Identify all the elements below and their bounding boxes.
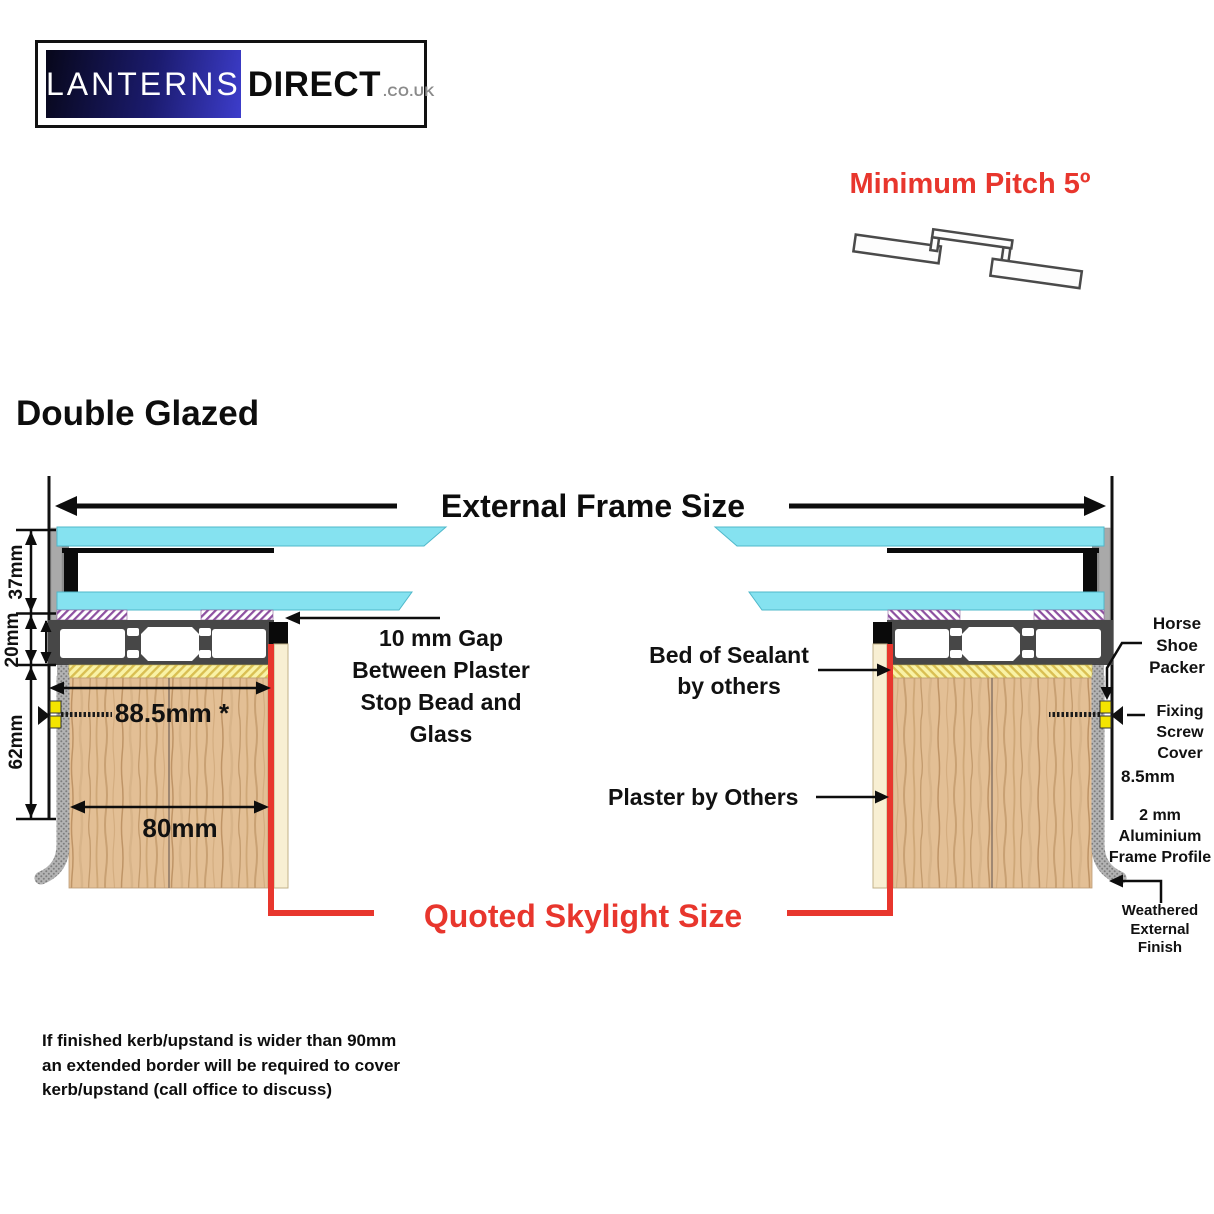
annotation-line: Fixing: [1146, 701, 1214, 722]
annotation-line: External: [1110, 921, 1210, 940]
annotation-line: Stop Bead and: [330, 686, 552, 718]
dim-8-5mm-label: 8.5mm: [1121, 766, 1175, 787]
annotation-line: Bed of Sealant: [629, 640, 829, 671]
footnote-line: an extended border will be required to c…: [42, 1054, 400, 1079]
annotation-line: Screw: [1146, 722, 1214, 743]
annotation-line: Cover: [1146, 743, 1214, 764]
dim-20mm-label: 20mm: [2, 605, 24, 675]
annotation-line: 2 mm: [1104, 805, 1214, 826]
footnote-line: kerb/upstand (call office to discuss): [42, 1078, 400, 1103]
annotation-line: Weathered: [1110, 902, 1210, 921]
annotation-line: Shoe: [1140, 635, 1214, 657]
quoted-skylight-size-label: Quoted Skylight Size: [368, 896, 798, 936]
page-title: Double Glazed: [16, 392, 259, 436]
external-frame-size-label: External Frame Size: [397, 486, 789, 526]
dim-37mm-label: 37mm: [6, 537, 28, 607]
gap-annotation: 10 mm Gap Between Plaster Stop Bead and …: [330, 622, 552, 750]
annotation-line: Between Plaster: [330, 654, 552, 686]
annotation-line: 10 mm Gap: [330, 622, 552, 654]
annotation-line: by others: [629, 671, 829, 702]
annotation-line: Finish: [1110, 939, 1210, 958]
annotation-line: Frame Profile: [1104, 847, 1214, 868]
footnote-line: If finished kerb/upstand is wider than 9…: [42, 1029, 400, 1054]
annotation-line: Horse: [1140, 613, 1214, 635]
annotation-line: Glass: [330, 718, 552, 750]
footnote: If finished kerb/upstand is wider than 9…: [42, 1029, 400, 1103]
dim-88-5mm-label: 88.5mm *: [72, 697, 272, 730]
frame-profile-annotation: 2 mm Aluminium Frame Profile: [1104, 805, 1214, 868]
skylight-spec-sheet: LANTERNS DIRECT .CO.UK: [0, 0, 1214, 1214]
dim-80mm-label: 80mm: [80, 812, 280, 845]
arrowhead-right: [1084, 496, 1106, 516]
pitch-sketch: [853, 219, 1085, 289]
bed-of-sealant-annotation: Bed of Sealant by others: [629, 640, 829, 702]
horse-shoe-packer-annotation: Horse Shoe Packer: [1140, 613, 1214, 679]
plaster-annotation: Plaster by Others: [608, 783, 798, 812]
fixing-screw-cover-annotation: Fixing Screw Cover: [1146, 701, 1214, 764]
annotation-line: Packer: [1140, 657, 1214, 679]
minimum-pitch-label: Minimum Pitch 5º: [820, 166, 1120, 202]
annotation-line: Aluminium: [1104, 826, 1214, 847]
arrowhead-left: [55, 496, 77, 516]
weathered-finish-annotation: Weathered External Finish: [1110, 902, 1210, 958]
dim-62mm-label: 62mm: [6, 707, 28, 777]
